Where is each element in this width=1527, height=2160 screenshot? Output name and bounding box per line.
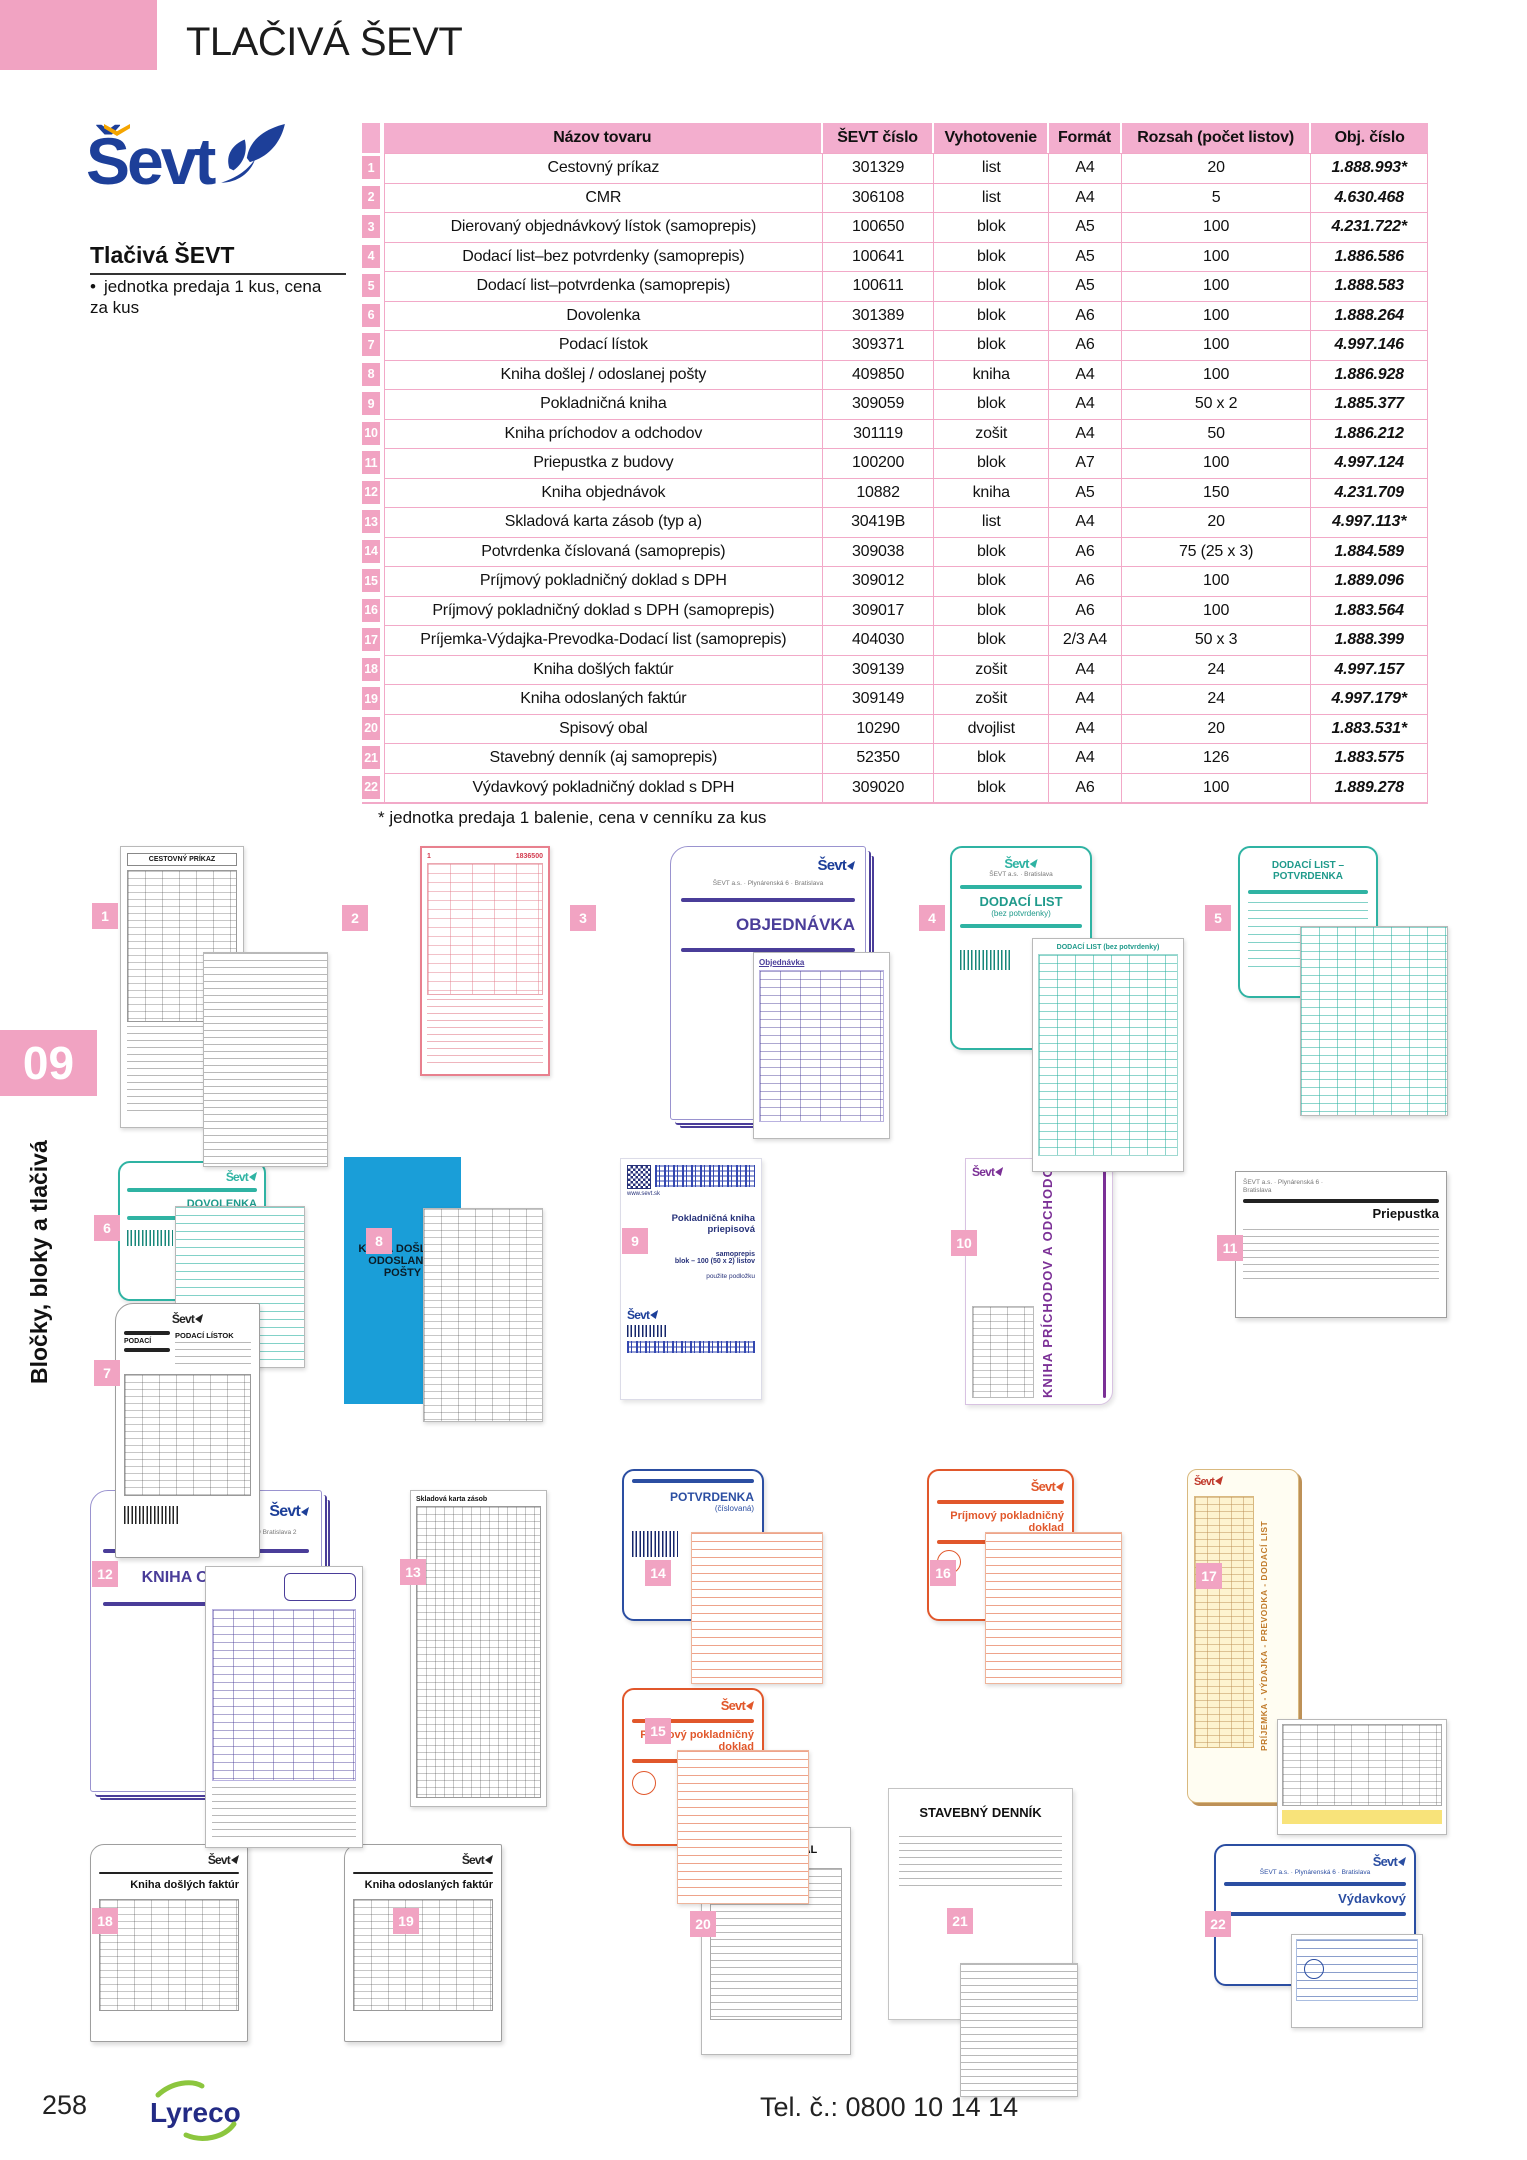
table-row: 3 Dierovaný objednávkový lístok (samopre… (362, 212, 1428, 242)
cell-rozsah: 50 x 3 (1122, 625, 1311, 655)
row-number-cell: 21 (362, 743, 380, 773)
side-label: PODACÍ (124, 1338, 170, 1345)
product-badge-12: 12 (92, 1561, 118, 1587)
cell-sevt-cislo: 100611 (823, 271, 935, 301)
cell-sevt-cislo: 52350 (823, 743, 935, 773)
form-grid (99, 1899, 239, 2011)
cell-rozsah: 126 (1122, 743, 1311, 773)
cell-rozsah: 100 (1122, 448, 1311, 478)
cell-name: Kniha príchodov a odchodov (384, 419, 823, 449)
row-number-chip: 1 (362, 156, 380, 179)
row-number-chip: 7 (362, 333, 380, 356)
form-grid (427, 863, 543, 995)
cell-vyhotovenie: blok (934, 537, 1049, 567)
cell-name: Podací lístok (384, 330, 823, 360)
table-row: 12 Kniha objednávok 10882 kniha A5 150 4… (362, 478, 1428, 508)
cover-top (627, 1165, 755, 1189)
product-badge-17: 17 (1196, 1563, 1222, 1589)
cell-name: Cestovný príkaz (384, 153, 823, 183)
cell-name: Spisový obal (384, 714, 823, 744)
product-badge-19: 19 (393, 1908, 419, 1934)
row-number-chip: 8 (362, 363, 380, 386)
cell-obj-cislo: 4.997.146 (1311, 330, 1428, 360)
cell-rozsah: 100 (1122, 360, 1311, 390)
product-image-podaci-listok: Ševt PODACÍ PODACÍ LÍSTOK (115, 1303, 260, 1558)
cell-name: Dovolenka (384, 301, 823, 331)
product-image-skladova-karta: Skladová karta zásob (410, 1490, 547, 1807)
address-line: ŠEVT a.s. · Plynárenská 6 · Bratislava (681, 880, 855, 888)
cell-vyhotovenie: dvojlist (934, 714, 1049, 744)
table-row: 5 Dodací list–potvrdenka (samoprepis) 10… (362, 271, 1428, 301)
color-bar (1224, 1912, 1406, 1916)
cell-rozsah: 50 x 2 (1122, 389, 1311, 419)
form-title: DODACÍ LIST – POTVRDENKA (1248, 860, 1368, 882)
cell-sevt-cislo: 404030 (823, 625, 935, 655)
product-image-kniha-prichodov-cover: Ševt KNIHA PRÍCHODOV A ODCHODOV (965, 1158, 1113, 1405)
stamp-circle (1304, 1959, 1324, 1979)
form-grid (972, 1306, 1034, 1398)
sevt-logo-small-text: Ševt (208, 1853, 239, 1867)
cell-name: Skladová karta zásob (typ a) (384, 507, 823, 537)
cell-obj-cislo: 1.883.564 (1311, 596, 1428, 626)
cell-format: A4 (1049, 684, 1122, 714)
sevt-logo-small: Ševt (127, 1170, 257, 1184)
sevt-logo-small-text: Ševt (627, 1308, 658, 1322)
row-number-cell: 12 (362, 478, 380, 508)
cell-name: Priepustka z budovy (384, 448, 823, 478)
form-lines (899, 1836, 1062, 1890)
chapter-number-box: 09 (0, 1030, 97, 1096)
color-bar (127, 1188, 257, 1192)
cell-sevt-cislo: 309059 (823, 389, 935, 419)
cell-sevt-cislo: 10882 (823, 478, 935, 508)
sevt-logo-small-text: Ševt (226, 1170, 257, 1184)
header-obj-cislo: Obj. číslo (1311, 123, 1428, 153)
cell-obj-cislo: 1.888.264 (1311, 301, 1428, 331)
form-subtitle: (bez potvrdenky) (960, 909, 1082, 918)
color-bar (632, 1479, 754, 1483)
address-line: ŠEVT a.s. · Plynárenská 6 · Bratislava (1243, 1179, 1343, 1195)
black-bar (124, 1331, 170, 1335)
table-row: 17 Príjemka-Výdajka-Prevodka-Dodací list… (362, 625, 1428, 655)
cell-vyhotovenie: blok (934, 625, 1049, 655)
left-column: PODACÍ (124, 1331, 170, 1368)
product-badge-3: 3 (570, 905, 596, 931)
cell-format: A4 (1049, 714, 1122, 744)
cell-vyhotovenie: blok (934, 743, 1049, 773)
color-bar (960, 924, 1082, 928)
table-body: 1 Cestovný príkaz 301329 list A4 20 1.88… (362, 153, 1428, 804)
sevt-logo-small: Ševt (124, 1312, 251, 1326)
row-number-chip: 5 (362, 274, 380, 297)
product-badge-13: 13 (400, 1559, 426, 1585)
cell-sevt-cislo: 301329 (823, 153, 935, 183)
product-image-stavebny-dennik-detail (960, 1963, 1078, 2097)
row-number-cell: 15 (362, 566, 380, 596)
butterfly-icon (217, 120, 289, 196)
table-row: 21 Stavebný denník (aj samoprepis) 52350… (362, 743, 1428, 773)
sevt-logo-small-text: Ševt (462, 1853, 493, 1867)
table-row: 9 Pokladničná kniha 309059 blok A4 50 x … (362, 389, 1428, 419)
product-badge-10: 10 (951, 1230, 977, 1256)
form-title: STAVEBNÝ DENNÍK (899, 1805, 1062, 1820)
product-badge-16: 16 (930, 1560, 956, 1586)
rule (99, 1872, 239, 1874)
cell-sevt-cislo: 309149 (823, 684, 935, 714)
sevt-logo-small-text: Ševt (269, 1503, 309, 1521)
product-image-dodaci-list-detail: DODACÍ LIST (bez potvrdenky) (1032, 938, 1184, 1172)
page-number: 258 (42, 2090, 87, 2121)
cell-obj-cislo: 1.888.583 (1311, 271, 1428, 301)
table-row: 13 Skladová karta zásob (typ a) 30419B l… (362, 507, 1428, 537)
table-row: 20 Spisový obal 10290 dvojlist A4 20 1.8… (362, 714, 1428, 744)
cell-obj-cislo: 4.231.722* (1311, 212, 1428, 242)
sevt-logo: Ševt (86, 128, 289, 196)
sevt-logo-text: Ševt (86, 128, 213, 194)
cell-sevt-cislo: 309038 (823, 537, 935, 567)
cell-format: A6 (1049, 301, 1122, 331)
form-title: Objednávka (759, 958, 884, 967)
cell-rozsah: 24 (1122, 684, 1311, 714)
sevt-logo-small: Ševt (99, 1853, 239, 1867)
row-number-chip: 11 (362, 451, 380, 474)
cell-rozsah: 5 (1122, 183, 1311, 213)
cell-rozsah: 20 (1122, 153, 1311, 183)
cell-sevt-cislo: 100200 (823, 448, 935, 478)
product-badge-1: 1 (92, 903, 118, 929)
cell-obj-cislo: 1.885.377 (1311, 389, 1428, 419)
cell-sevt-cislo: 301119 (823, 419, 935, 449)
product-badge-7: 7 (94, 1360, 120, 1386)
cell-rozsah: 50 (1122, 419, 1311, 449)
product-badge-22: 22 (1205, 1911, 1231, 1937)
cell-vyhotovenie: list (934, 507, 1049, 537)
cell-sevt-cislo: 10290 (823, 714, 935, 744)
form-grid (212, 1609, 356, 1781)
cell-vyhotovenie: kniha (934, 360, 1049, 390)
cell-name: Kniha došlých faktúr (384, 655, 823, 685)
cell-rozsah: 20 (1122, 714, 1311, 744)
page-title: TLAČIVÁ ŠEVT (186, 20, 462, 65)
cell-vyhotovenie: zošit (934, 655, 1049, 685)
row-number-cell: 5 (362, 271, 380, 301)
cell-obj-cislo: 1.884.589 (1311, 537, 1428, 567)
sevt-logo-small: Ševt (972, 1165, 1034, 1179)
cell-format: A4 (1049, 360, 1122, 390)
form-title: DODACÍ LIST (bez potvrdenky) (1038, 944, 1178, 951)
cell-format: A5 (1049, 478, 1122, 508)
cell-name: Dodací list–potvrdenka (samoprepis) (384, 271, 823, 301)
cell-format: A4 (1049, 507, 1122, 537)
sevt-logo-small-text: Ševt (1004, 856, 1037, 871)
cover-left: Ševt (972, 1165, 1034, 1398)
cell-name: Príjmový pokladničný doklad s DPH (samop… (384, 596, 823, 626)
cell-sevt-cislo: 409850 (823, 360, 935, 390)
table-row: 7 Podací lístok 309371 blok A6 100 4.997… (362, 330, 1428, 360)
cover-title-vertical: KNIHA PRÍCHODOV A ODCHODOV (1040, 1165, 1097, 1398)
product-image-priepustka: ŠEVT a.s. · Plynárenská 6 · Bratislava P… (1235, 1171, 1447, 1318)
cell-name: Kniha došlej / odoslanej pošty (384, 360, 823, 390)
cell-obj-cislo: 1.889.096 (1311, 566, 1428, 596)
table-row: 18 Kniha došlých faktúr 309139 zošit A4 … (362, 655, 1428, 685)
product-image-kniha-doslych-faktur: Ševt Kniha došlých faktúr (90, 1844, 248, 2042)
row-number-cell: 19 (362, 684, 380, 714)
form-title: Príjmový pokladničný doklad (937, 1510, 1064, 1534)
cell-format: A4 (1049, 153, 1122, 183)
cell-sevt-cislo: 309020 (823, 773, 935, 803)
cell-sevt-cislo: 309012 (823, 566, 935, 596)
row-number-chip: 10 (362, 422, 380, 445)
cell-rozsah: 100 (1122, 773, 1311, 803)
product-badge-4: 4 (919, 905, 945, 931)
header-name: Názov tovaru (384, 123, 823, 153)
cmr-one: 1 (427, 853, 431, 860)
sevt-logo-small: Ševt (1194, 1476, 1254, 1488)
cell-name: Dodací list–bez potvrdenky (samoprepis) (384, 242, 823, 272)
cell-rozsah: 100 (1122, 301, 1311, 331)
product-badge-18: 18 (92, 1908, 118, 1934)
cell-vyhotovenie: zošit (934, 419, 1049, 449)
cell-vyhotovenie: blok (934, 448, 1049, 478)
row-number-chip: 4 (362, 245, 380, 268)
barcode (632, 1531, 678, 1557)
lyreco-logo-text: Lyreco (150, 2097, 241, 2128)
header-vyhotovenie: Vyhotovenie (934, 123, 1049, 153)
row-number-chip: 16 (362, 599, 380, 622)
cell-format: 2/3 A4 (1049, 625, 1122, 655)
form-header: 1 1836500 (427, 853, 543, 860)
address-line: ŠEVT a.s. · Plynárenská 6 · Bratislava (1224, 1869, 1406, 1877)
cell-name: CMR (384, 183, 823, 213)
row-number-chip: 12 (362, 481, 380, 504)
product-image-kniha-dosle-posty-page (423, 1208, 543, 1422)
row-number-cell: 2 (362, 183, 380, 213)
black-bar (1243, 1199, 1439, 1203)
row-number-chip: 18 (362, 658, 380, 681)
header-rozsah: Rozsah (počet listov) (1122, 123, 1311, 153)
sevt-logo-small-text: Ševt (818, 857, 856, 874)
form-lines (1243, 1229, 1439, 1285)
cell-name: Príjemka-Výdajka-Prevodka-Dodací list (s… (384, 625, 823, 655)
lyreco-logo-svg: Lyreco (136, 2078, 254, 2144)
form-grid (1194, 1496, 1254, 1748)
product-table: Názov tovaru ŠEVT číslo Vyhotovenie Form… (362, 123, 1428, 804)
row-number-chip: 3 (362, 215, 380, 238)
row-number-cell: 1 (362, 153, 380, 183)
row-number-cell: 6 (362, 301, 380, 331)
cell-rozsah: 20 (1122, 507, 1311, 537)
sevt-logo-small-text: Ševt (721, 1698, 754, 1713)
cell-format: A5 (1049, 271, 1122, 301)
cell-name: Stavebný denník (aj samoprepis) (384, 743, 823, 773)
cell-obj-cislo: 1.886.928 (1311, 360, 1428, 390)
row-number-chip: 9 (362, 392, 380, 415)
cell-sevt-cislo: 301389 (823, 301, 935, 331)
form-title: PODACÍ LÍSTOK (175, 1331, 251, 1340)
product-image-cestovny-prikaz-detail (203, 952, 328, 1167)
cell-rozsah: 100 (1122, 212, 1311, 242)
brand-heading: Tlačivá ŠEVT (90, 242, 346, 275)
cell-format: A7 (1049, 448, 1122, 478)
color-bar (1224, 1882, 1406, 1886)
form-box (284, 1573, 356, 1601)
color-bar (937, 1500, 1064, 1504)
pixel-band (655, 1165, 755, 1187)
cell-rozsah: 100 (1122, 271, 1311, 301)
cell-rozsah: 75 (25 x 3) (1122, 537, 1311, 567)
cell-obj-cislo: 1.888.993* (1311, 153, 1428, 183)
product-image-cmr: 1 1836500 (420, 846, 550, 1076)
purple-rule (1103, 1165, 1106, 1398)
table-row: 16 Príjmový pokladničný doklad s DPH (sa… (362, 596, 1428, 626)
cell-rozsah: 24 (1122, 655, 1311, 685)
form-header: PODACÍ PODACÍ LÍSTOK (124, 1331, 251, 1368)
table-row: 22 Výdavkový pokladničný doklad s DPH 30… (362, 773, 1428, 803)
cmr-serial: 1836500 (516, 853, 543, 860)
product-badge-20: 20 (690, 1911, 716, 1937)
table-row: 6 Dovolenka 301389 blok A6 100 1.888.264 (362, 301, 1428, 331)
form-grid (759, 970, 884, 1122)
sevt-logo-small-text: Ševt (172, 1312, 203, 1326)
bullet-text: jednotka predaja 1 kus, cena za kus (90, 277, 321, 317)
cell-name: Príjmový pokladničný doklad s DPH (384, 566, 823, 596)
form-title: POTVRDENKA (632, 1491, 754, 1504)
cell-format: A6 (1049, 537, 1122, 567)
row-number-cell: 9 (362, 389, 380, 419)
cell-sevt-cislo: 100641 (823, 242, 935, 272)
sevt-logo-small-text: Ševt (1031, 1479, 1064, 1494)
product-badge-15: 15 (645, 1718, 671, 1744)
table-row: 1 Cestovný príkaz 301329 list A4 20 1.88… (362, 153, 1428, 183)
color-bar (681, 898, 855, 902)
form-title: Skladová karta zásob (416, 1496, 541, 1503)
form-title: OBJEDNÁVKA (681, 916, 855, 935)
cell-vyhotovenie: list (934, 183, 1049, 213)
cell-name: Kniha objednávok (384, 478, 823, 508)
row-number-cell: 3 (362, 212, 380, 242)
cell-sevt-cislo: 306108 (823, 183, 935, 213)
sevt-logo-small-text: Ševt (1194, 1476, 1223, 1488)
cell-obj-cislo: 1.888.399 (1311, 625, 1428, 655)
header-sevt-cislo: ŠEVT číslo (823, 123, 935, 153)
cell-obj-cislo: 4.997.124 (1311, 448, 1428, 478)
table-row: 15 Príjmový pokladničný doklad s DPH 309… (362, 566, 1428, 596)
cell-obj-cislo: 4.997.179* (1311, 684, 1428, 714)
form-subtitle: (číslovaná) (632, 1504, 754, 1513)
sevt-logo-small-text: Ševt (1373, 1854, 1406, 1869)
cell-vyhotovenie: blok (934, 301, 1049, 331)
barcode (124, 1506, 178, 1524)
cell-format: A4 (1049, 389, 1122, 419)
qr-code (627, 1165, 651, 1189)
form-grid (1038, 954, 1178, 1156)
table-row: 8 Kniha došlej / odoslanej pošty 409850 … (362, 360, 1428, 390)
cell-name: Kniha odoslaných faktúr (384, 684, 823, 714)
form-title: Výdavkový (1224, 1892, 1406, 1906)
cell-rozsah: 100 (1122, 566, 1311, 596)
row-number-chip: 20 (362, 717, 380, 740)
cell-obj-cislo: 1.889.278 (1311, 773, 1428, 803)
lyreco-logo: Lyreco (136, 2078, 254, 2149)
rule (353, 1872, 493, 1874)
product-badge-9: 9 (622, 1228, 648, 1254)
cell-format: A4 (1049, 419, 1122, 449)
product-image-prijemka-vydajka-detail (1277, 1719, 1447, 1835)
header-num (362, 123, 380, 153)
cell-vyhotovenie: blok (934, 242, 1049, 272)
cell-vyhotovenie: kniha (934, 478, 1049, 508)
product-image-vydavkovy-doklad-detail (1291, 1934, 1423, 2028)
form-grid (416, 1506, 541, 1798)
row-number-chip: 17 (362, 628, 380, 651)
row-number-cell: 20 (362, 714, 380, 744)
cell-obj-cislo: 1.886.586 (1311, 242, 1428, 272)
cell-format: A5 (1049, 212, 1122, 242)
cell-obj-cislo: 1.883.575 (1311, 743, 1428, 773)
cell-rozsah: 150 (1122, 478, 1311, 508)
form-lines (175, 1342, 251, 1368)
color-bar (960, 885, 1082, 889)
bullet-dot: • (90, 277, 96, 296)
row-number-cell: 7 (362, 330, 380, 360)
table-row: 14 Potvrdenka číslovaná (samoprepis) 309… (362, 537, 1428, 567)
product-badge-8: 8 (366, 1228, 392, 1254)
pink-corner-rect (0, 0, 157, 70)
cell-vyhotovenie: blok (934, 330, 1049, 360)
form-lines (427, 999, 543, 1069)
cover-sub2: blok – 100 (50 x 2) listov (627, 1258, 755, 1265)
cell-name: Potvrdenka číslovaná (samoprepis) (384, 537, 823, 567)
sevt-logo-small: Ševt (1224, 1854, 1406, 1869)
row-number-cell: 11 (362, 448, 380, 478)
product-image-potvrdenka-detail (691, 1532, 823, 1684)
cell-vyhotovenie: zošit (934, 684, 1049, 714)
sevt-logo-word: Ševt (86, 124, 213, 198)
cell-format: A6 (1049, 566, 1122, 596)
url-text: www.sevt.sk (627, 1191, 755, 1197)
product-image-dodaci-list-potvrdenka-detail (1300, 926, 1448, 1116)
table-row: 2 CMR 306108 list A4 5 4.630.468 (362, 183, 1428, 213)
cell-format: A4 (1049, 655, 1122, 685)
form-title: DODACÍ LIST (960, 895, 1082, 909)
cell-sevt-cislo: 30419B (823, 507, 935, 537)
color-bar (1248, 890, 1368, 894)
highlight-row (1282, 1810, 1442, 1824)
form-title: Priepustka (1243, 1207, 1439, 1221)
row-number-chip: 14 (362, 540, 380, 563)
row-number-chip: 21 (362, 746, 380, 769)
sevt-logo-small: Ševt (627, 1308, 755, 1322)
row-number-chip: 19 (362, 687, 380, 710)
catalog-page: TLAČIVÁ ŠEVT Ševt Tlačivá ŠEVT •jednotka… (0, 0, 1527, 2160)
sevt-logo-small: Ševt (681, 857, 855, 874)
table-footnote: * jednotka predaja 1 balenie, cena v cen… (378, 808, 766, 828)
cover-sub3: použite podložku (627, 1273, 755, 1280)
barcode (960, 950, 1012, 970)
sevt-logo-small-text: Ševt (972, 1165, 1003, 1179)
barcode (127, 1230, 173, 1246)
table-row: 19 Kniha odoslaných faktúr 309149 zošit … (362, 684, 1428, 714)
table-header-row: Názov tovaru ŠEVT číslo Vyhotovenie Form… (362, 123, 1428, 153)
stamp-circle (632, 1771, 656, 1795)
cell-rozsah: 100 (1122, 242, 1311, 272)
cell-rozsah: 100 (1122, 330, 1311, 360)
cell-vyhotovenie: blok (934, 773, 1049, 803)
chapter-label-vertical: Bločky, bloky a tlačivá (26, 1104, 53, 1384)
row-number-cell: 4 (362, 242, 380, 272)
product-image-prijmovy-doklad-detail (677, 1750, 809, 1904)
form-grid (353, 1899, 493, 2011)
